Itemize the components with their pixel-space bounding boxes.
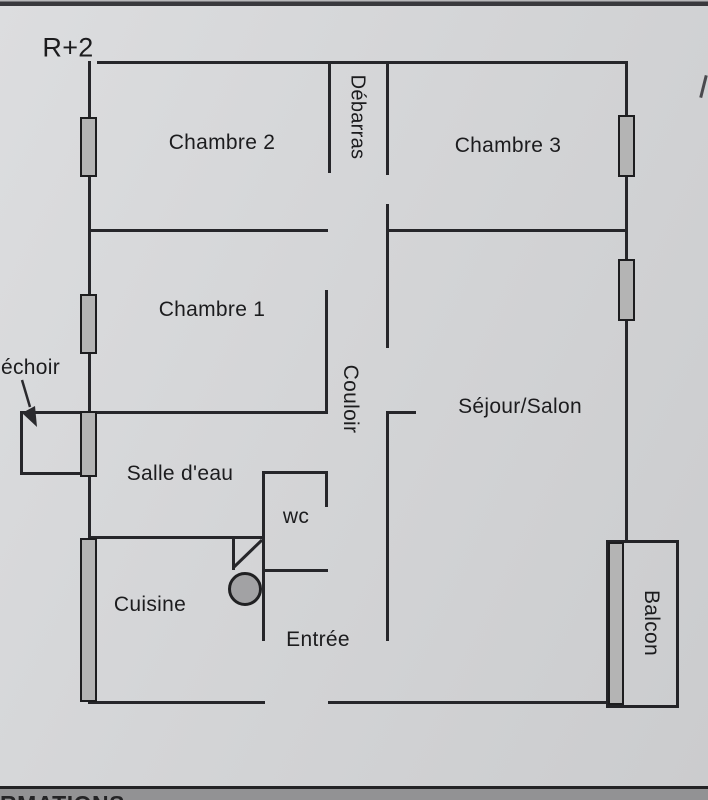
room-label-chambre3: Chambre 3 bbox=[455, 134, 562, 158]
room-label-chambre2: Chambre 2 bbox=[169, 131, 276, 155]
sechoir-arrow-shaft bbox=[22, 380, 30, 407]
room-label-sechoir: échoir bbox=[1, 356, 60, 380]
room-label-balcon: Balcon bbox=[639, 590, 663, 656]
room-label-entree: Entrée bbox=[286, 628, 350, 652]
room-label-cuisine: Cuisine bbox=[114, 593, 186, 617]
room-label-couloir: Couloir bbox=[338, 365, 362, 434]
room-label-salledeau: Salle d'eau bbox=[127, 462, 234, 486]
door-leaf-diagonal bbox=[234, 540, 262, 567]
sechoir-arrow-icon bbox=[22, 406, 37, 427]
bottom-section-band: RMATIONS bbox=[0, 786, 708, 800]
room-label-sejour-salon: Séjour/Salon bbox=[458, 395, 582, 419]
room-label-wc: wc bbox=[283, 505, 309, 529]
room-label-debarras: Débarras bbox=[346, 75, 369, 160]
room-label-chambre1: Chambre 1 bbox=[159, 298, 266, 322]
bottom-section-title: RMATIONS bbox=[0, 791, 125, 800]
floorplan-photo: R+2 Chambre 2 Débarras Chambre 3 Chambre… bbox=[0, 0, 708, 800]
